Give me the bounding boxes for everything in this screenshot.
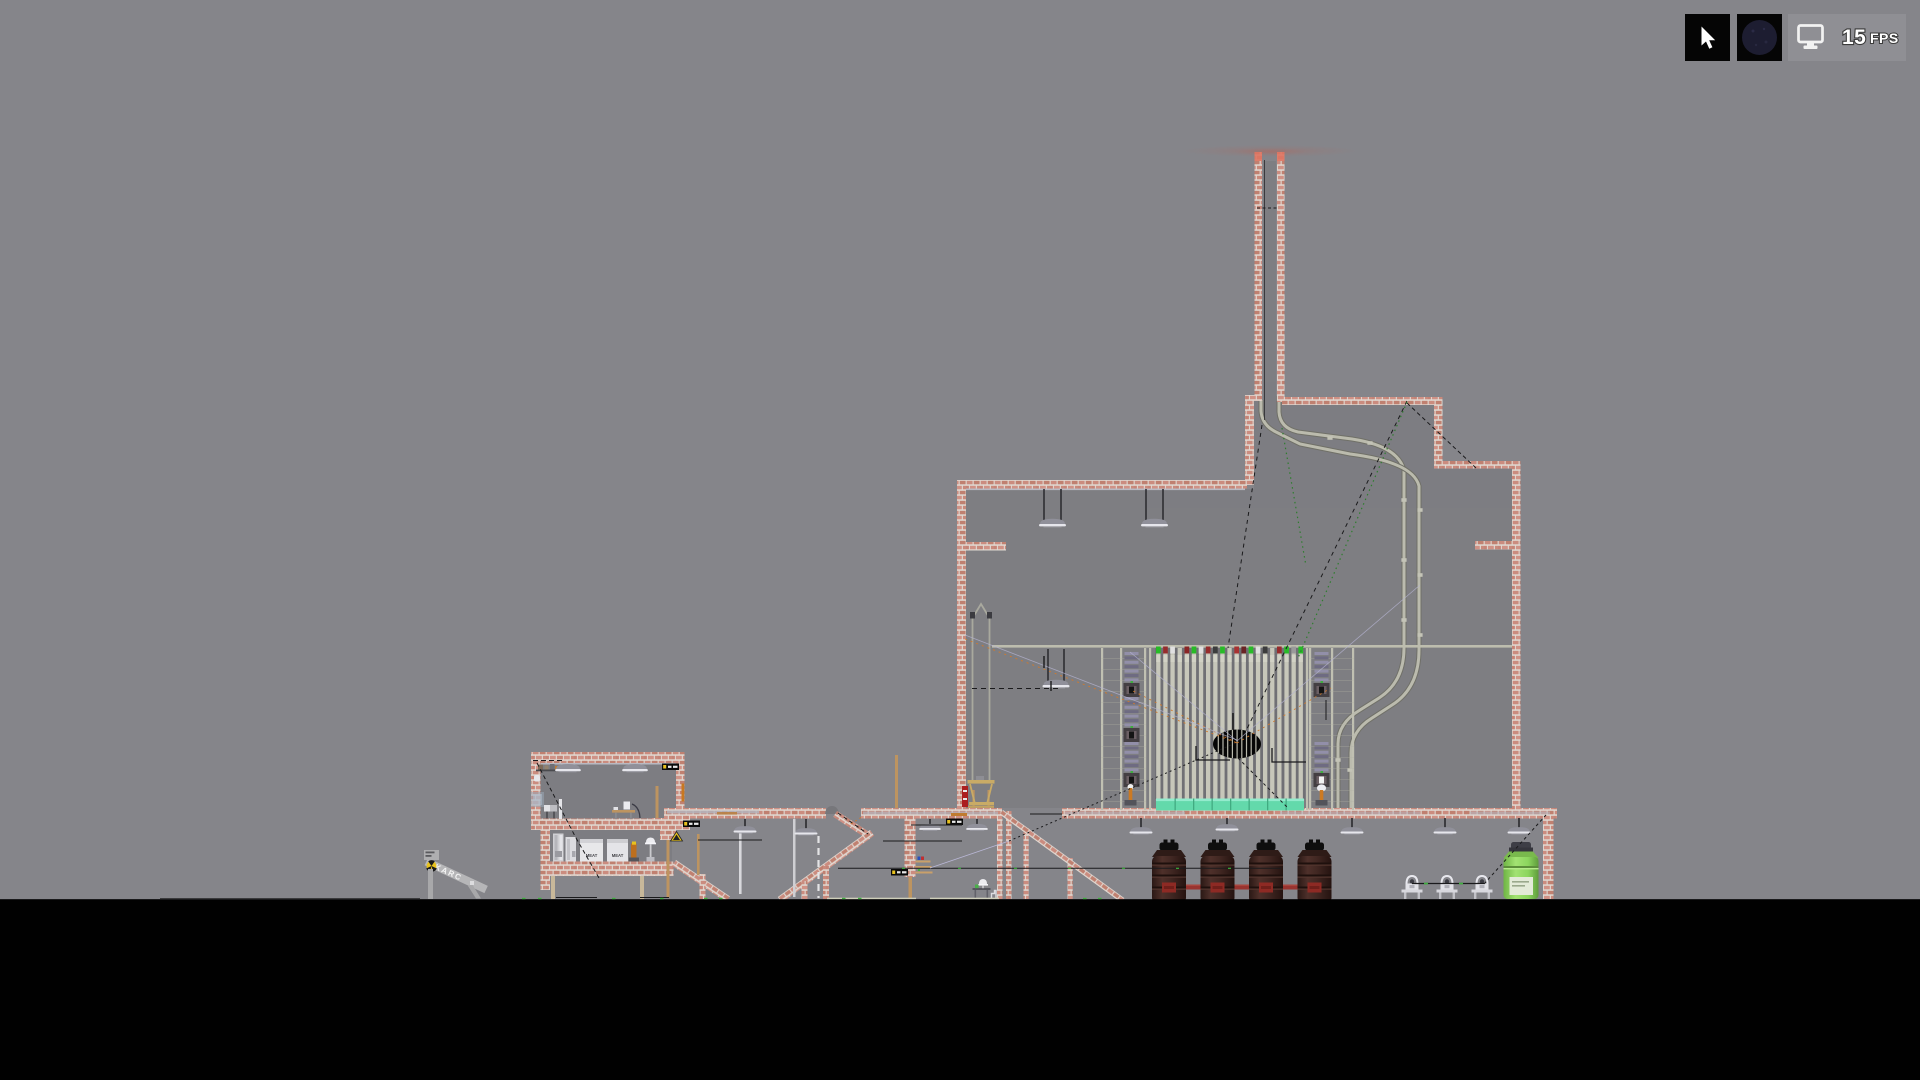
svg-text:FPS: FPS [1870, 30, 1899, 46]
svg-text:15: 15 [1842, 26, 1866, 49]
svg-text:MEAT: MEAT [612, 853, 624, 858]
